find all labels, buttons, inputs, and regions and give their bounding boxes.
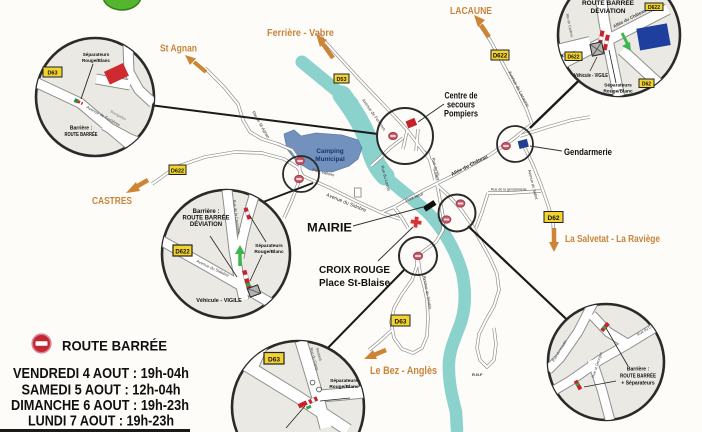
svg-text:ROUTE BARRÉE: ROUTE BARRÉE	[62, 338, 167, 354]
svg-text:VENDREDI 4 AOUT : 19h-04h: VENDREDI 4 AOUT : 19h-04h	[13, 365, 189, 382]
svg-text:Rouge/Blanc: Rouge/Blanc	[603, 89, 633, 95]
svg-text:Rouge/Blanc: Rouge/Blanc	[254, 249, 284, 255]
svg-text:D622: D622	[493, 54, 508, 60]
svg-text:Séparateurs: Séparateurs	[330, 378, 358, 384]
svg-text:Place St-Blaise: Place St-Blaise	[319, 277, 390, 289]
svg-text:D63: D63	[395, 319, 407, 326]
svg-text:D53: D53	[336, 77, 346, 83]
svg-text:D622: D622	[648, 5, 660, 11]
svg-text:Ferrière - Vabre: Ferrière - Vabre	[267, 28, 334, 39]
svg-text:D62: D62	[642, 82, 651, 88]
svg-text:DIMANCHE 6 AOUT : 19h-23h: DIMANCHE 6 AOUT : 19h-23h	[11, 397, 189, 414]
svg-text:D622: D622	[175, 250, 190, 256]
svg-text:Rouge/Blanc: Rouge/Blanc	[329, 384, 359, 390]
svg-text:DÉVIATION: DÉVIATION	[190, 220, 222, 228]
svg-text:Barrière :: Barrière :	[627, 367, 650, 373]
svg-text:SAMEDI 5 AOUT : 12h-04h: SAMEDI 5 AOUT : 12h-04h	[22, 382, 181, 399]
svg-text:Véhicule - VIGILE: Véhicule - VIGILE	[574, 73, 609, 79]
svg-text:D622: D622	[171, 169, 184, 175]
svg-text:+ Séparateurs: + Séparateurs	[621, 381, 654, 387]
svg-text:Pompiers: Pompiers	[444, 109, 478, 119]
svg-text:DÉVIATION: DÉVIATION	[591, 6, 626, 15]
svg-text:La Salvetat - La Raviège: La Salvetat - La Raviège	[565, 234, 660, 245]
svg-text:Véhicule - VIGILE: Véhicule - VIGILE	[196, 298, 242, 304]
svg-text:R.N.F: R.N.F	[472, 372, 483, 377]
svg-text:Camping: Camping	[316, 148, 343, 155]
svg-text:St Agnan: St Agnan	[160, 43, 197, 55]
svg-text:Séparateurs: Séparateurs	[604, 83, 632, 89]
svg-text:CROIX ROUGE: CROIX ROUGE	[319, 264, 390, 276]
svg-text:MAIRIE: MAIRIE	[307, 221, 352, 235]
svg-text:D63: D63	[268, 357, 280, 364]
svg-text:CASTRES: CASTRES	[92, 196, 132, 207]
svg-text:Rouge/Blanc: Rouge/Blanc	[82, 58, 111, 63]
svg-text:Le Bez - Anglès: Le Bez - Anglès	[370, 365, 437, 377]
svg-text:Barrière :: Barrière :	[70, 126, 93, 132]
svg-text:LUNDI 7 AOUT : 19h-23h: LUNDI 7 AOUT : 19h-23h	[28, 413, 174, 430]
svg-text:Séparateurs: Séparateurs	[83, 52, 110, 57]
svg-text:Gendarmerie: Gendarmerie	[564, 147, 612, 158]
svg-text:D622: D622	[568, 55, 580, 61]
svg-text:ROUTE BARRÉE: ROUTE BARRÉE	[65, 130, 99, 138]
svg-text:ROUTE BARRÉE: ROUTE BARRÉE	[620, 372, 657, 380]
svg-text:Séparateurs: Séparateurs	[255, 243, 283, 249]
svg-text:Municipal: Municipal	[315, 156, 345, 163]
svg-text:Barrière :: Barrière :	[193, 209, 220, 215]
svg-text:D63: D63	[47, 71, 57, 77]
svg-text:D62: D62	[548, 215, 560, 222]
svg-text:LACAUNE: LACAUNE	[450, 6, 492, 17]
svg-text:Rue de la gendarmerie: Rue de la gendarmerie	[491, 188, 527, 192]
svg-text:ROUTE BARRÉE: ROUTE BARRÉE	[183, 214, 230, 222]
svg-text:ROUTE BARRÉE: ROUTE BARRÉE	[582, 0, 635, 7]
